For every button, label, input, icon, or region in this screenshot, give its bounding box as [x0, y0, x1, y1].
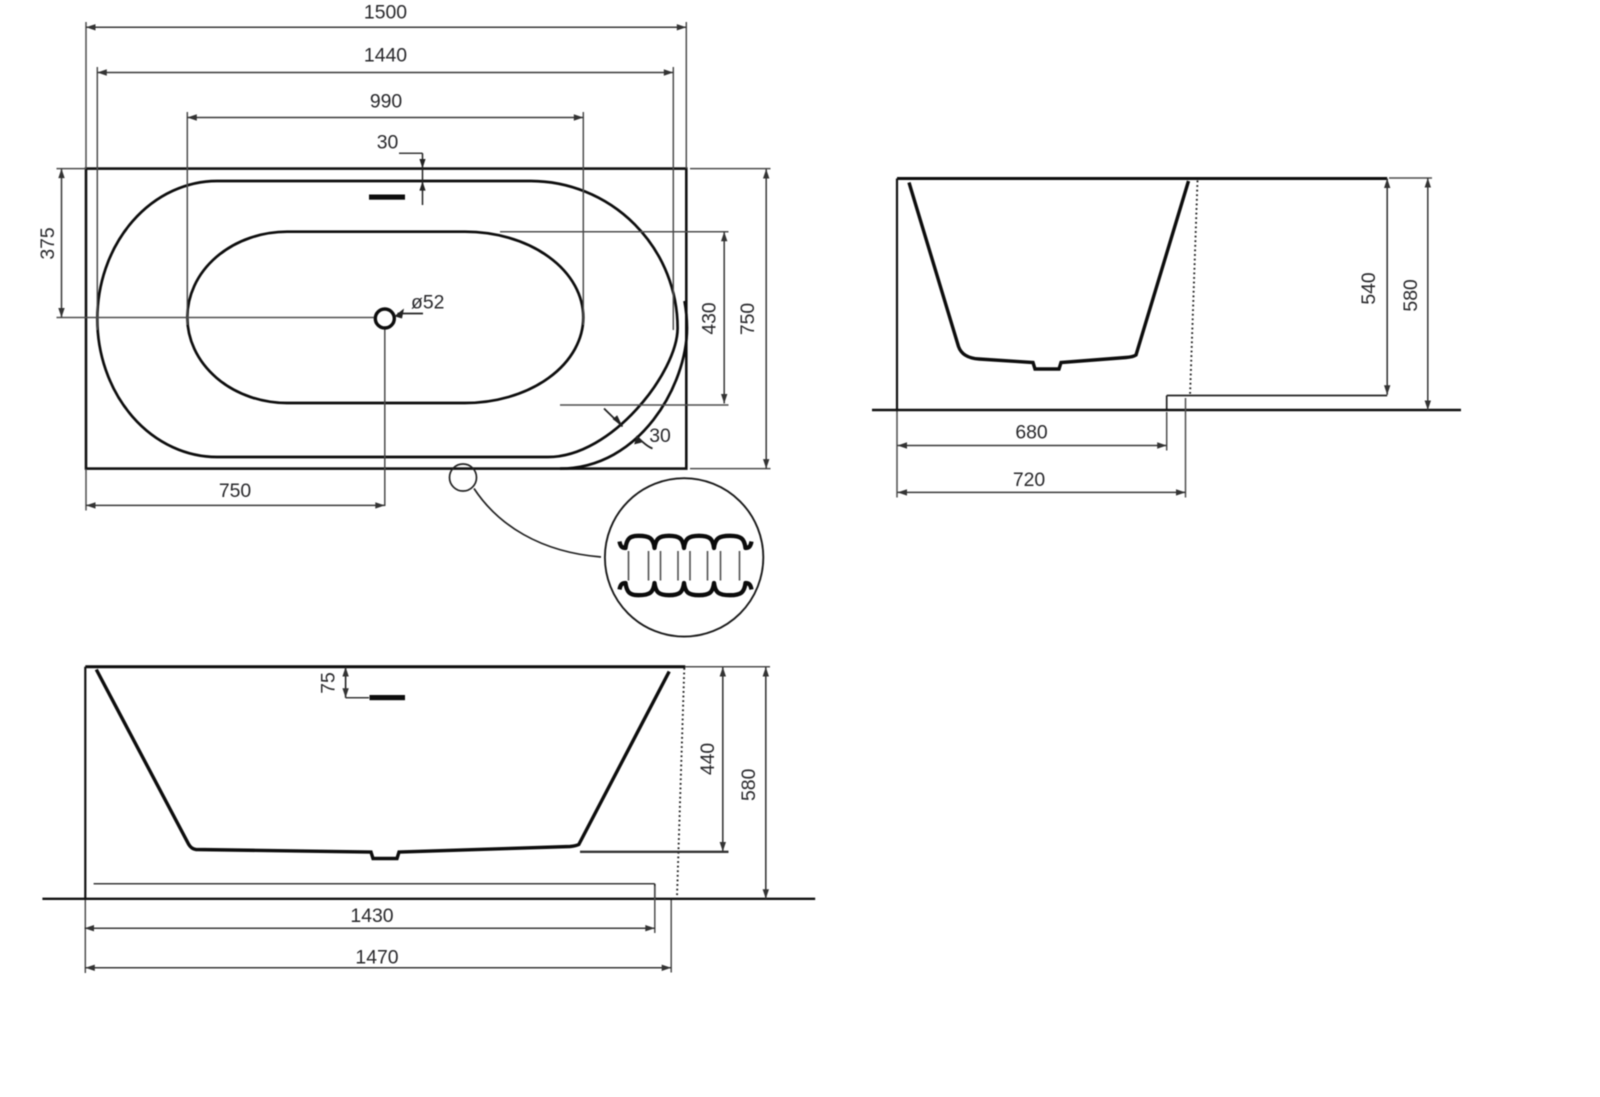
- svg-text:30: 30: [377, 131, 399, 153]
- svg-text:580: 580: [1400, 279, 1422, 312]
- svg-text:1500: 1500: [364, 2, 407, 24]
- svg-text:680: 680: [1015, 422, 1048, 444]
- svg-text:750: 750: [737, 303, 759, 336]
- svg-text:990: 990: [370, 91, 403, 113]
- svg-text:430: 430: [699, 302, 721, 335]
- svg-text:580: 580: [738, 768, 760, 801]
- svg-text:540: 540: [1358, 272, 1380, 305]
- svg-text:1440: 1440: [364, 45, 407, 67]
- svg-text:1470: 1470: [355, 946, 398, 968]
- svg-text:ø52: ø52: [411, 292, 444, 314]
- svg-text:720: 720: [1013, 469, 1046, 491]
- svg-text:75: 75: [318, 672, 340, 694]
- svg-text:440: 440: [697, 743, 719, 776]
- svg-text:375: 375: [37, 227, 59, 259]
- svg-text:750: 750: [219, 480, 252, 502]
- svg-text:1430: 1430: [350, 905, 393, 927]
- svg-text:30: 30: [649, 425, 671, 447]
